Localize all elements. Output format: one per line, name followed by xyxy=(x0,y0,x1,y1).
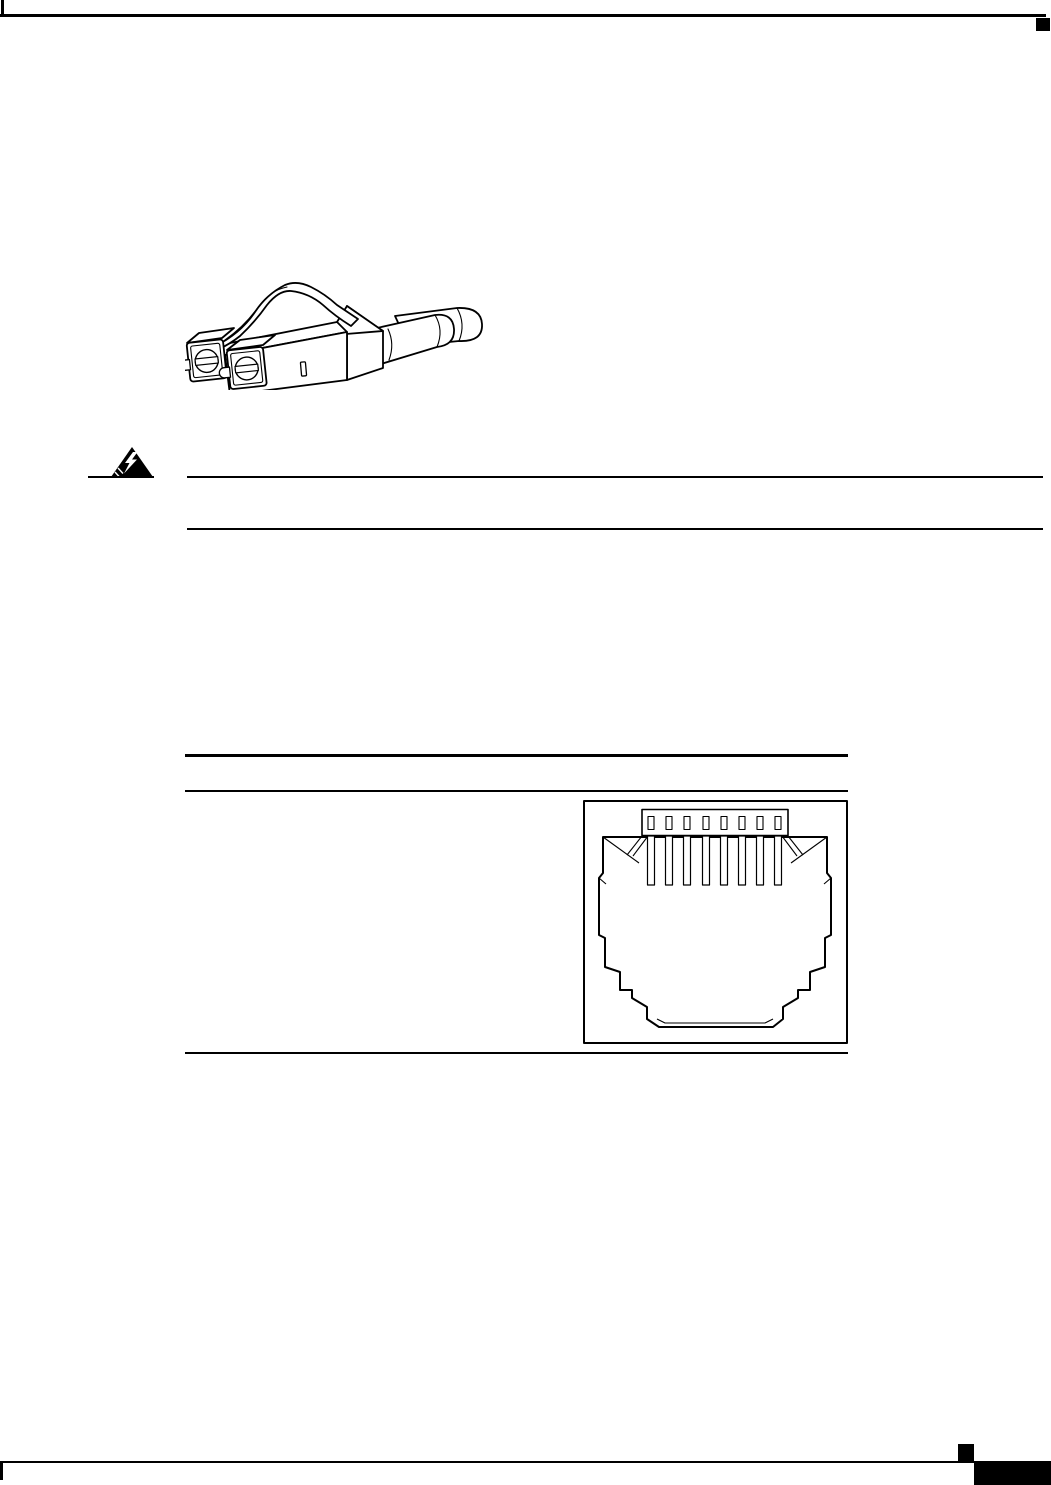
pin-top xyxy=(775,817,781,830)
warning-bottom-rule xyxy=(187,528,1043,530)
table-header-rule xyxy=(185,790,848,792)
warning-icon xyxy=(111,447,153,477)
pin-top xyxy=(703,817,709,830)
table-bottom-rule xyxy=(185,1052,848,1054)
ferrule1-stub xyxy=(185,360,191,371)
document-page xyxy=(0,0,1051,1485)
bottom-right-corner-block xyxy=(974,1461,1051,1485)
top-header-rule xyxy=(0,14,1046,17)
pin-contact xyxy=(739,836,746,885)
warning-top-rule xyxy=(187,476,1043,478)
pin-top xyxy=(666,817,672,830)
bottom-left-crop-tick xyxy=(0,1461,3,1480)
ferrule2-stub xyxy=(219,367,231,378)
boot-shape xyxy=(377,315,454,364)
pin-contact xyxy=(757,836,764,885)
pin-top xyxy=(648,817,654,830)
pin-contact xyxy=(721,836,728,885)
pin-housing xyxy=(642,810,788,836)
pin-top xyxy=(757,817,763,830)
body-key-slot xyxy=(300,362,306,376)
rj45-jack-figure xyxy=(583,800,848,1044)
pin-contact xyxy=(666,836,673,885)
table-top-rule xyxy=(185,754,848,757)
jack-face-outline xyxy=(599,837,831,1027)
pin-top xyxy=(721,817,727,830)
pin-top xyxy=(739,817,745,830)
warning-icon-underline xyxy=(88,476,154,478)
footer-small-square xyxy=(958,1444,974,1461)
pin-top xyxy=(684,817,690,830)
lc-connector-figure xyxy=(185,278,490,390)
pin-contact xyxy=(703,836,710,885)
lightning-triangle-icon xyxy=(111,447,153,477)
lc-connector-drawing xyxy=(185,278,490,390)
footer-rule xyxy=(0,1461,974,1463)
rj45-jack-drawing xyxy=(583,800,848,1044)
pin-contact xyxy=(684,836,691,885)
pin-contact xyxy=(648,836,655,885)
pin-contact xyxy=(775,836,782,885)
top-right-registration-square xyxy=(1036,18,1050,31)
